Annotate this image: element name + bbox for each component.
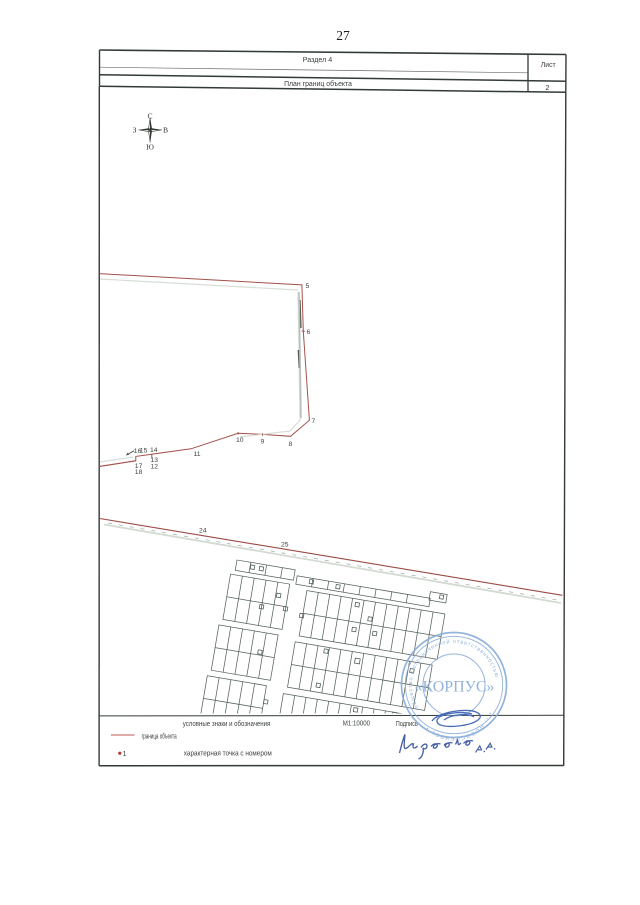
svg-text:15: 15 [140,447,148,454]
svg-text:М1:10000: М1:10000 [343,720,370,727]
svg-text:7: 7 [312,418,316,425]
svg-text:18: 18 [135,469,143,476]
svg-text:Лист: Лист [541,60,556,69]
svg-text:12: 12 [151,464,159,471]
svg-text:Ю: Ю [146,142,154,151]
svg-text:План границ объекта: План границ объекта [284,79,353,88]
svg-text:В: В [163,125,168,134]
svg-text:характерная точка с номером: характерная точка с номером [184,750,272,757]
svg-text:2: 2 [545,83,549,92]
svg-text:«КОРПУС»: «КОРПУС» [415,679,495,696]
svg-text:условные знаки и обозначения: условные знаки и обозначения [183,720,271,728]
svg-text:24: 24 [199,528,207,535]
svg-text:Подпись: Подпись [396,721,418,728]
svg-text:10: 10 [236,437,244,444]
svg-text:6: 6 [307,329,311,336]
svg-text:27: 27 [336,28,350,43]
svg-text:З: З [133,125,137,134]
svg-text:8: 8 [289,441,293,448]
svg-text:25: 25 [281,542,289,549]
svg-text:1: 1 [123,751,127,758]
svg-text:11: 11 [194,451,201,458]
svg-text:14: 14 [150,447,158,454]
svg-text:9: 9 [261,439,265,446]
svg-text:Раздел 4: Раздел 4 [303,55,333,64]
svg-text:5: 5 [306,283,310,290]
svg-text:граница объекта: граница объекта [142,733,177,741]
